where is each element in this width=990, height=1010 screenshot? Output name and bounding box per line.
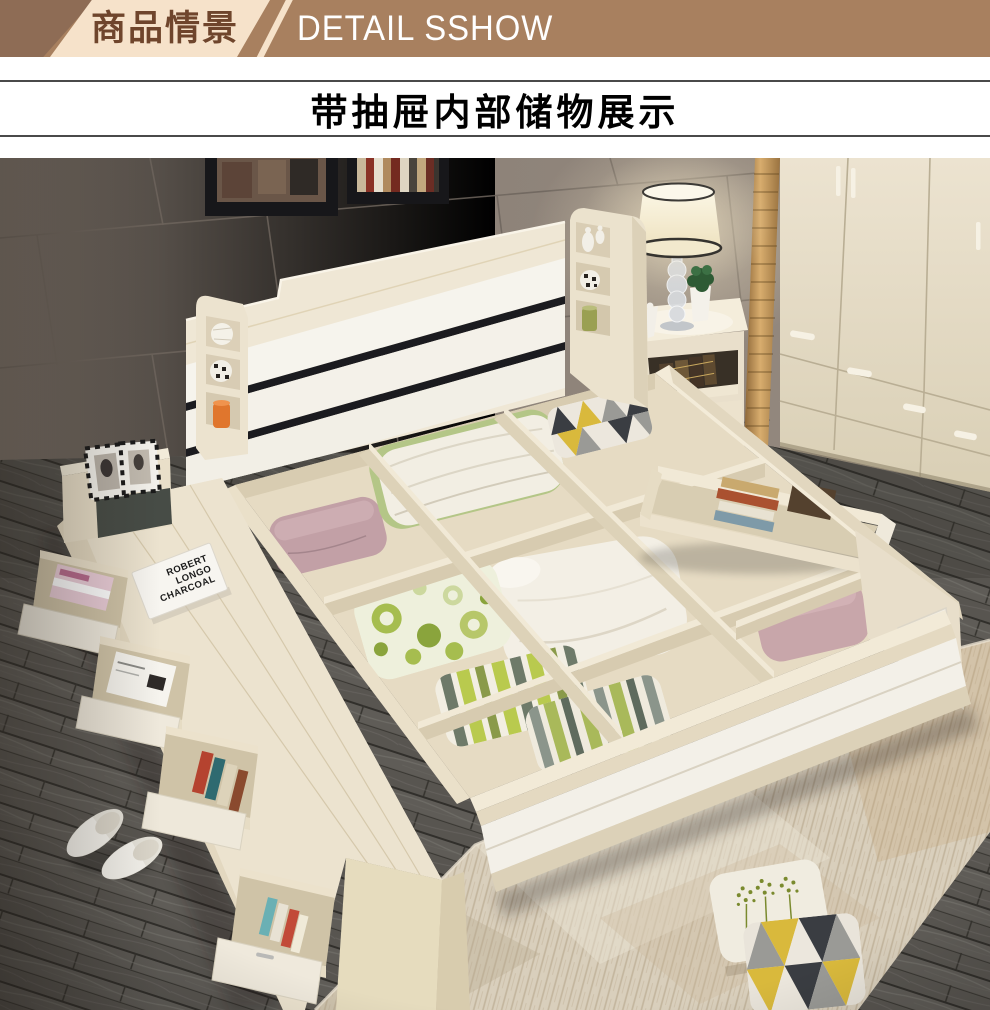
page-title: 带抽屉内部储物展示 (311, 82, 680, 136)
section-title-row: 带抽屉内部储物展示 (0, 82, 990, 135)
product-photo: ROBERT LONGO CHARCOAL (0, 158, 990, 1010)
banner-title-en: DETAIL SSHOW (297, 0, 553, 57)
vignette (0, 158, 990, 1010)
spacer (0, 57, 990, 80)
detail-banner: 商品情景 DETAIL SSHOW (0, 0, 990, 57)
spacer (0, 137, 990, 158)
